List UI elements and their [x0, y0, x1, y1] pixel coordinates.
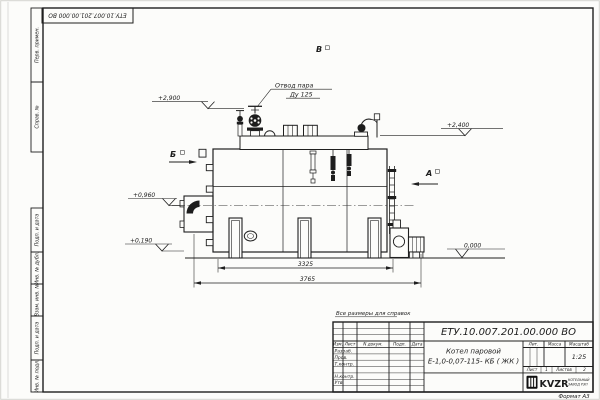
- view-marker-left: Б: [170, 150, 176, 159]
- platform-valve-box-1: [284, 125, 298, 136]
- elevation-shell-top-value: +2,400: [447, 122, 469, 129]
- boiler-side-view: [172, 106, 505, 258]
- elevation-lower-port-value: +0,190: [130, 237, 152, 244]
- elevation-lower-port: +0,190: [125, 237, 184, 251]
- sheet-label: Лист: [526, 367, 538, 372]
- view-marker-top: В: [316, 45, 322, 54]
- safety-valve: [236, 106, 263, 136]
- logo-sub2: ЗАВОД РЭП: [568, 383, 588, 387]
- lit-label: Лит.: [528, 342, 539, 347]
- burner: [180, 196, 213, 232]
- col-data: Дата: [411, 342, 423, 347]
- row-nkontr: Н.контр.: [335, 374, 355, 380]
- col-list: Лист: [344, 342, 356, 347]
- boiler-general-view-drawing: Перв. примен. Справ. № Подп. и дата Инв.…: [0, 0, 600, 400]
- col-izm: Изм.: [333, 342, 343, 347]
- drum-dome: [265, 131, 276, 136]
- doc-number-top-inverted: ЕТУ.10.007.201.00.000 ВО: [48, 11, 127, 17]
- steam-drum-platform: [240, 136, 368, 150]
- format-label: Формат А3: [558, 394, 590, 400]
- steam-outlet-callout: Отвод пара Ду 125: [257, 83, 332, 108]
- elevation-ground: 0,000: [447, 242, 505, 257]
- mass-label: Масса: [548, 342, 562, 347]
- side-label-sprav-no: Справ. №: [35, 105, 41, 128]
- elevation-valve-top: +2,900: [152, 95, 244, 109]
- dim-overall-length: 3765: [300, 276, 315, 283]
- reference-note-text: Все размеры для справок: [336, 311, 411, 317]
- blower-unit: [390, 220, 424, 258]
- scale-value: 1:25: [572, 353, 587, 361]
- col-podp: Подп.: [393, 342, 406, 347]
- side-label-podp-data-2: Подп. и дата: [35, 322, 41, 355]
- manufacturer-logo: KVZR КОТЕЛЬНЫЙ ЗАВОД РЭП: [527, 376, 590, 390]
- top-left-bracket: [199, 149, 206, 157]
- steam-outlet-size: Ду 125: [289, 92, 313, 99]
- elevation-ground-value: 0,000: [464, 242, 481, 249]
- platform-valve-box-2: [304, 125, 318, 136]
- row-prov: Пров.: [335, 355, 348, 361]
- scanned-drawing-sheet: Перв. примен. Справ. № Подп. и дата Инв.…: [0, 0, 600, 400]
- sheets-value: 2: [583, 367, 586, 372]
- sheets-label: Листов: [555, 367, 572, 372]
- row-tkontr: Т.контр.: [335, 361, 355, 367]
- col-ndoc: N докум.: [363, 342, 382, 347]
- reference-note: Все размеры для справок: [335, 311, 411, 317]
- logo-sub1: КОТЕЛЬНЫЙ: [568, 377, 590, 382]
- logo-name: KVZR: [540, 379, 570, 390]
- elevation-valve-top-value: +2,900: [158, 95, 180, 102]
- side-label-perv-primen: Перв. примен.: [35, 27, 41, 63]
- title-block-text: ЕТУ.10.007.201.00.000 ВО Котел паровой Е…: [333, 327, 590, 390]
- product-name-line2: Е-1,0-0,07-115- КБ ( ЖК ): [428, 358, 520, 366]
- dim-between-supports: 3325: [298, 261, 313, 268]
- row-razrab: Разраб.: [335, 349, 353, 355]
- elevation-shell-top: +2,400: [380, 122, 503, 136]
- side-label-podp-data-1: Подп. и дата: [35, 214, 41, 247]
- side-label-inv-podl: Инв. № подл.: [35, 359, 41, 392]
- product-name-line1: Котел паровой: [446, 348, 501, 356]
- scale-label: Масштаб: [569, 342, 589, 347]
- doc-number: ЕТУ.10.007.201.00.000 ВО: [441, 327, 576, 338]
- side-label-vzam-inv: Взам. инв. №: [35, 284, 41, 317]
- elevation-burner-axis: +0,960: [128, 192, 184, 206]
- steam-outlet-leader: [257, 89, 271, 107]
- right-platform-fitting: [355, 114, 380, 138]
- elevation-burner-axis-value: +0,960: [133, 192, 155, 199]
- sheet-value: 1: [545, 367, 548, 372]
- steam-outlet-label: Отвод пара: [275, 83, 314, 90]
- view-marker-right: А: [425, 169, 432, 178]
- row-utv: Утв.: [335, 380, 344, 386]
- side-label-inv-dubl: Инв. № дубл.: [35, 252, 41, 285]
